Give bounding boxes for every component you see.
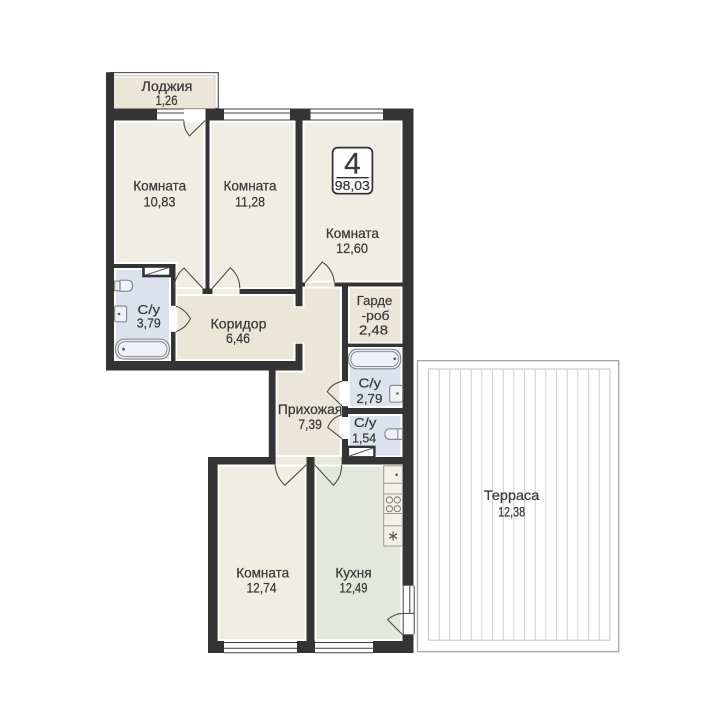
svg-text:Гарде: Гарде bbox=[357, 293, 393, 308]
svg-text:2,48: 2,48 bbox=[359, 322, 388, 337]
svg-text:Комната: Комната bbox=[133, 178, 186, 194]
svg-text:Прихожая: Прихожая bbox=[278, 401, 343, 417]
svg-text:2,79: 2,79 bbox=[356, 391, 382, 406]
svg-text:12,74: 12,74 bbox=[247, 579, 277, 595]
svg-text:12,49: 12,49 bbox=[340, 579, 368, 595]
svg-text:Комната: Комната bbox=[224, 178, 277, 194]
svg-text:12,60: 12,60 bbox=[336, 240, 368, 256]
svg-text:11,28: 11,28 bbox=[235, 193, 265, 209]
svg-text:4: 4 bbox=[344, 147, 361, 180]
svg-text:С/у: С/у bbox=[359, 376, 382, 391]
svg-text:7,39: 7,39 bbox=[298, 416, 322, 432]
svg-text:Кухня: Кухня bbox=[335, 565, 371, 581]
svg-text:3,79: 3,79 bbox=[137, 316, 161, 331]
svg-text:Коридор: Коридор bbox=[211, 316, 267, 332]
svg-text:12,38: 12,38 bbox=[498, 504, 525, 520]
svg-text:С/у: С/у bbox=[354, 415, 377, 430]
svg-text:1,26: 1,26 bbox=[156, 92, 178, 108]
svg-text:6,46: 6,46 bbox=[226, 330, 250, 346]
svg-text:-роб: -роб bbox=[362, 308, 390, 323]
svg-text:Комната: Комната bbox=[326, 225, 379, 241]
svg-text:10,83: 10,83 bbox=[144, 193, 176, 209]
svg-text:Терраса: Терраса bbox=[484, 487, 540, 503]
svg-text:98,03: 98,03 bbox=[335, 179, 370, 193]
svg-text:Комната: Комната bbox=[236, 565, 289, 581]
svg-text:1,54: 1,54 bbox=[352, 430, 376, 445]
